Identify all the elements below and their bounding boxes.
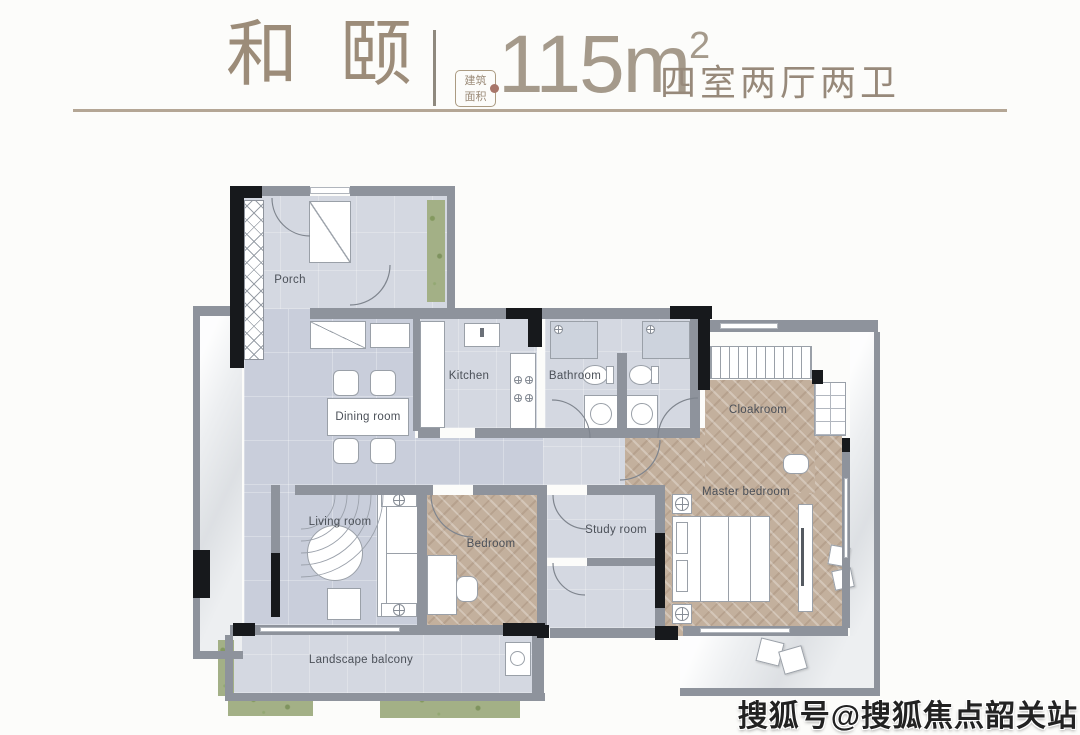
room-label-dining-room: Dining room	[335, 411, 400, 423]
room-label-porch: Porch	[274, 274, 306, 286]
room-label-master-bedroom: Master bedroom	[702, 486, 790, 498]
plan-title: 和颐	[226, 16, 454, 95]
room-label-cloakroom: Cloakroom	[729, 404, 787, 416]
room-label-study-room: Study room	[585, 524, 647, 536]
floorplan: Porch Kitchen Bathroom Dining room Cloak…	[180, 148, 880, 732]
room-label-kitchen: Kitchen	[449, 370, 489, 382]
area-number: 115	[498, 19, 623, 110]
area-badge-line2: 面积	[456, 90, 495, 106]
room-label-bedroom: Bedroom	[467, 538, 516, 550]
room-label-living-room: Living room	[309, 516, 372, 528]
door-arcs-layer	[180, 148, 880, 732]
room-label-bathroom: Bathroom	[549, 370, 601, 382]
header-divider	[433, 30, 436, 106]
layout-text: 四室两厅两卫	[660, 54, 900, 106]
header-rule	[73, 109, 1007, 112]
room-label-landscape-balcony: Landscape balcony	[309, 654, 413, 666]
